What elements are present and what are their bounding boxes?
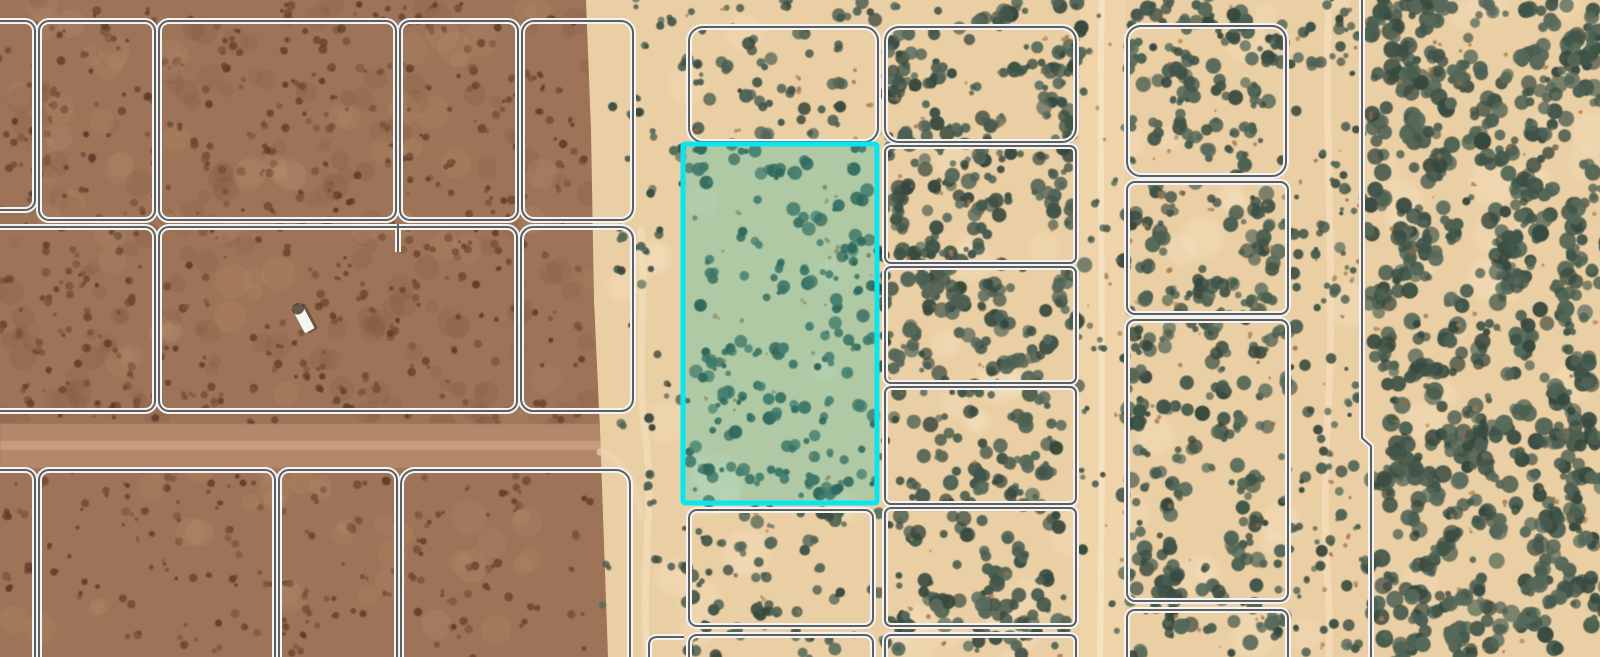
selected-parcel-highlight[interactable]	[683, 144, 877, 503]
west-dirt-road-track	[0, 441, 612, 450]
satellite-map-canvas	[0, 0, 1600, 657]
map-viewport[interactable]	[0, 0, 1600, 657]
east-road-track	[1100, 0, 1102, 657]
